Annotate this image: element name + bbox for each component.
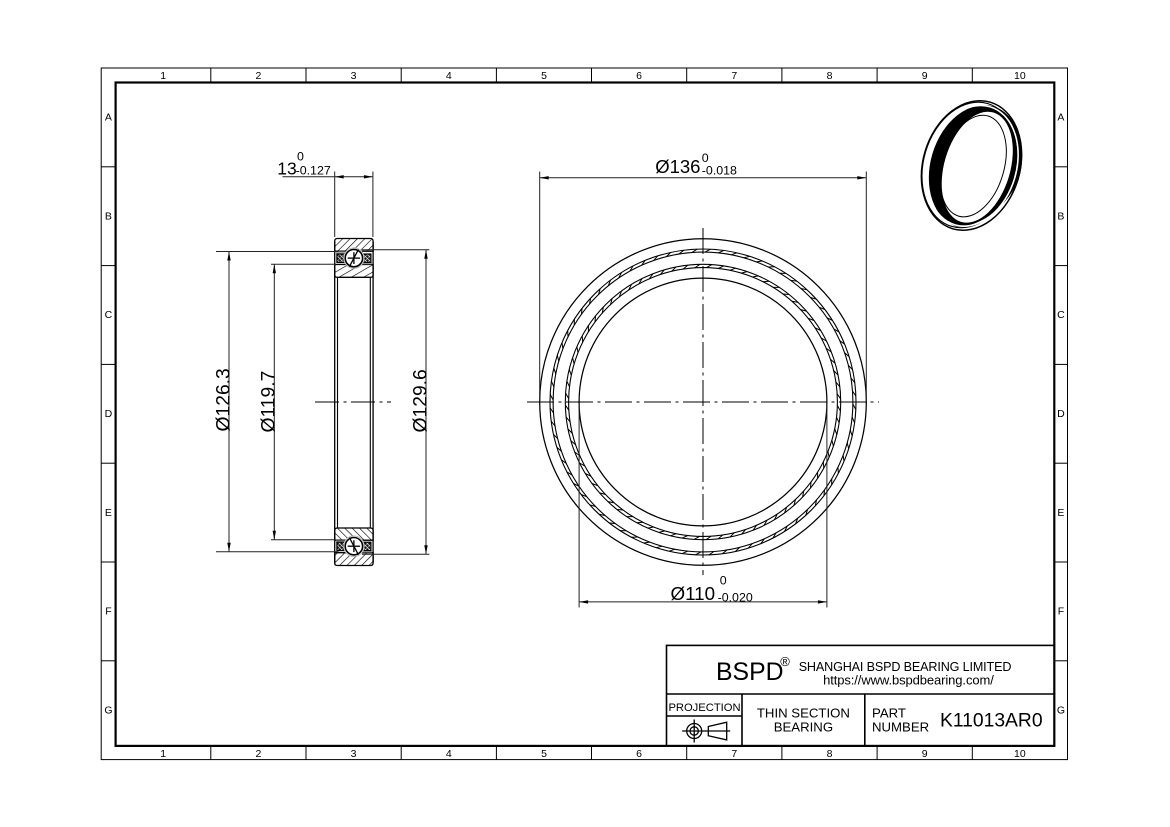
svg-text:Ø119.7: Ø119.7	[259, 371, 280, 433]
svg-text:3: 3	[351, 748, 357, 760]
svg-text:6: 6	[636, 70, 642, 82]
svg-text:BEARING: BEARING	[774, 719, 833, 734]
svg-text:8: 8	[827, 70, 833, 82]
svg-text:B: B	[105, 210, 112, 222]
svg-text:A: A	[1057, 112, 1064, 124]
svg-text:7: 7	[731, 70, 737, 82]
svg-text:F: F	[105, 606, 111, 618]
svg-text:3: 3	[351, 70, 357, 82]
svg-text:13: 13	[277, 159, 296, 179]
svg-text:E: E	[105, 507, 112, 519]
svg-text:B: B	[1057, 210, 1064, 222]
svg-text:https://www.bspdbearing.com/: https://www.bspdbearing.com/	[823, 672, 994, 687]
svg-text:Ø129.6: Ø129.6	[410, 369, 431, 432]
svg-text:0: 0	[720, 574, 727, 588]
svg-text:-0.020: -0.020	[718, 591, 753, 605]
svg-text:10: 10	[1014, 70, 1026, 82]
svg-text:2: 2	[255, 748, 261, 760]
svg-text:5: 5	[541, 70, 547, 82]
svg-text:C: C	[105, 309, 113, 321]
svg-text:-0.018: -0.018	[702, 164, 737, 178]
svg-text:5: 5	[541, 748, 547, 760]
svg-text:-0.127: -0.127	[296, 163, 331, 177]
svg-text:9: 9	[922, 70, 928, 82]
svg-text:D: D	[105, 408, 113, 420]
svg-text:Ø136: Ø136	[655, 156, 700, 177]
svg-text:G: G	[1057, 704, 1065, 716]
svg-text:7: 7	[731, 748, 737, 760]
svg-text:G: G	[104, 704, 112, 716]
svg-text:Ø110: Ø110	[671, 583, 716, 604]
svg-text:1: 1	[160, 748, 166, 760]
svg-text:1: 1	[160, 70, 166, 82]
svg-text:NUMBER: NUMBER	[872, 719, 929, 734]
svg-text:10: 10	[1014, 748, 1026, 760]
svg-text:2: 2	[255, 70, 261, 82]
svg-text:K11013AR0: K11013AR0	[940, 711, 1043, 732]
svg-text:PROJECTION: PROJECTION	[668, 702, 740, 714]
svg-text:A: A	[105, 112, 112, 124]
svg-text:0: 0	[297, 149, 304, 163]
svg-text:BSPD: BSPD	[716, 659, 784, 686]
svg-text:F: F	[1058, 606, 1064, 618]
svg-text:E: E	[1057, 507, 1064, 519]
svg-text:4: 4	[446, 70, 452, 82]
svg-text:8: 8	[827, 748, 833, 760]
svg-text:®: ®	[780, 654, 790, 669]
svg-text:C: C	[1057, 309, 1065, 321]
svg-text:6: 6	[636, 748, 642, 760]
svg-text:Ø126.3: Ø126.3	[213, 368, 234, 431]
svg-text:9: 9	[922, 748, 928, 760]
svg-text:4: 4	[446, 748, 452, 760]
svg-text:D: D	[1057, 408, 1065, 420]
